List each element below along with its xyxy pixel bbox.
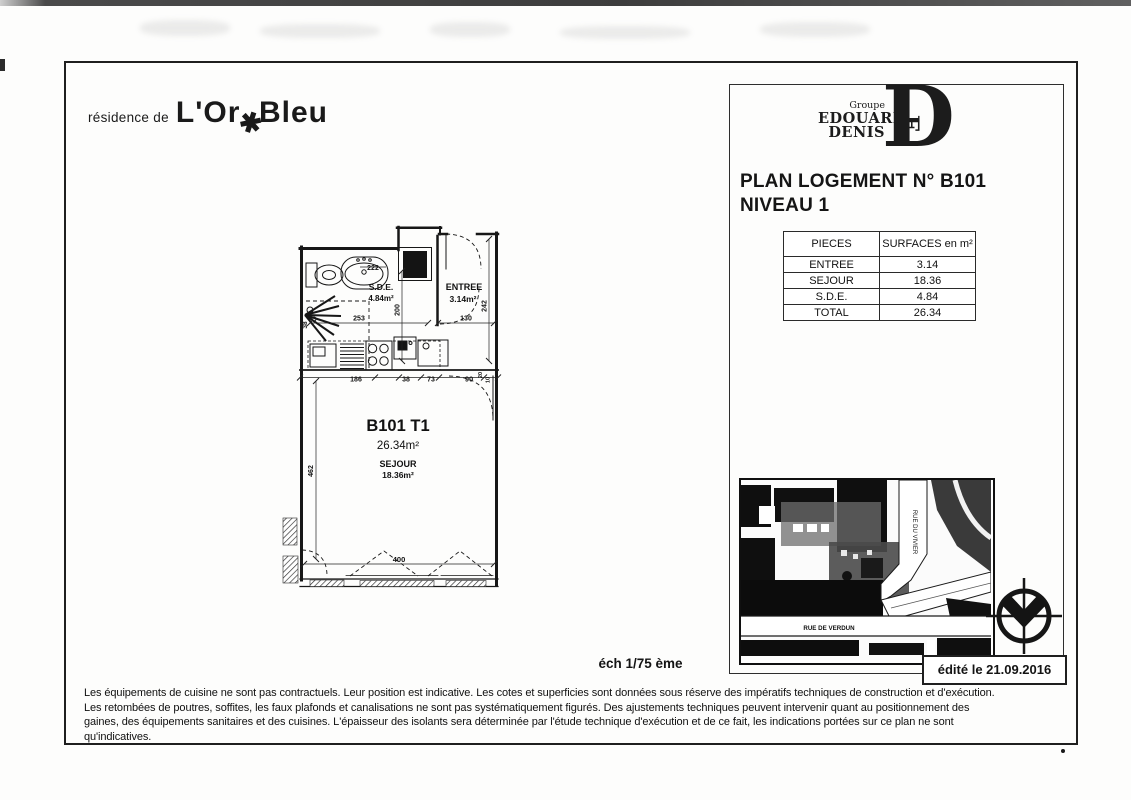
scan-artifact [430,22,510,37]
table-cell-piece: ENTREE [784,257,880,273]
table-row: S.D.E. 4.84 [784,289,976,305]
unit-total-area: 26.34m² [377,440,419,452]
residence-logo: résidence de L'Or ✱ Bleu [88,96,328,130]
residence-logo-prefix: résidence de [88,110,169,130]
kitchen-icons [308,337,448,370]
room-area-sejour: 18.36m² [382,470,414,480]
dimension-label-90: 90 [465,375,473,384]
shower-icon [305,296,341,341]
scan-artifact [0,59,5,71]
disclaimer-line: Les équipements de cuisine ne sont pas c… [84,686,1084,701]
table-cell-surface: 26.34 [880,305,976,321]
dimension-label-130: 130 [460,316,472,323]
scan-artifact [560,26,690,39]
monogram-inner-e-icon: E [896,115,923,133]
table-row: TOTAL 26.34 [784,305,976,321]
disclaimer: Les équipements de cuisine ne sont pas c… [84,686,1084,744]
table-row: SEJOUR 18.36 [784,273,976,289]
residence-logo-word1: L'Or [176,96,240,130]
table-header-pieces: PIECES [784,232,880,257]
table-cell-piece: S.D.E. [784,289,880,305]
surfaces-table: PIECES SURFACES en m² ENTREE 3.14 SEJOUR… [783,231,976,321]
group-name-line2: DENIS [818,126,885,141]
table-cell-surface: 4.84 [880,289,976,305]
table-cell-surface: 18.36 [880,273,976,289]
dimension-label-38-kitchen: 38 [402,377,410,384]
edouard-denis-logo: Groupe EDOUARD DENIS [818,101,885,141]
street-label-horizontal: RUE DE VERDUN [803,625,855,632]
scan-artifact [140,20,230,36]
page-title-line2: NIVEAU 1 [740,194,986,218]
dimension-label-222: 222 [367,265,379,272]
site-map-image: RUE DU VIVIER RUE DE VERDUN [741,480,991,660]
dimension-label-462: 462 [308,465,315,477]
dimension-label-253: 253 [353,316,365,323]
scan-artifact-top-bar [0,0,1131,6]
scan-artifact [1061,749,1065,753]
toilet-icon [306,263,343,287]
disclaimer-line: qu'indicatives. [84,730,1084,745]
disclaimer-line: Les retombées de poutres, soffites, les … [84,701,1084,716]
counter-unit-icon [418,340,448,366]
unit-label: B101 T1 [366,417,429,435]
north-compass-icon [984,576,1064,656]
dimension-label-38-left: 38 [302,321,309,329]
table-cell-piece: TOTAL [784,305,880,321]
dimension-label-186: 186 [350,377,362,384]
scale-label: éch 1/75 ème [573,656,708,671]
kitchen-sink-icon [394,337,416,359]
room-label-sde: S.D.E. [369,282,394,292]
table-header-row: PIECES SURFACES en m² [784,232,976,257]
disclaimer-line: gaines, des équipements sanitaires et de… [84,715,1084,730]
room-label-entree: ENTREE [446,282,483,292]
dimension-label-10: 10 [486,377,492,383]
dimension-label-242: 242 [482,300,489,312]
table-header-surfaces: SURFACES en m² [880,232,976,257]
table-row: ENTREE 3.14 [784,257,976,273]
dimension-label-20: 20 [478,372,484,378]
page-title-line1: PLAN LOGEMENT N° B101 [740,170,986,194]
room-area-entree: 3.14m² [450,294,477,304]
table-cell-piece: SEJOUR [784,273,880,289]
floor-plan: 222 S.D.E. 4.84m² ENTREE 3.14m² 253 130 … [280,213,515,618]
scanned-floor-plan-document: résidence de L'Or ✱ Bleu Groupe EDOUARD … [0,0,1131,800]
dimension-label-73: 73 [427,377,435,384]
dimension-label-200: 200 [395,304,402,316]
street-label-vertical: RUE DU VIVIER [911,510,917,555]
edited-date-box: édité le 21.09.2016 [922,655,1067,685]
table-cell-surface: 3.14 [880,257,976,273]
site-map: RUE DU VIVIER RUE DE VERDUN [739,478,995,665]
dimension-label-400: 400 [393,555,406,564]
duct-shaft [399,248,432,281]
room-area-sde: 4.84m² [368,294,394,303]
scan-artifact [260,24,380,38]
residence-logo-word2: Bleu [259,96,328,130]
hatched-walls [283,518,486,587]
page-title: PLAN LOGEMENT N° B101 NIVEAU 1 [740,170,986,218]
hob-icon [366,341,392,370]
scan-artifact [760,22,870,37]
room-label-sejour: SEJOUR [379,459,417,469]
